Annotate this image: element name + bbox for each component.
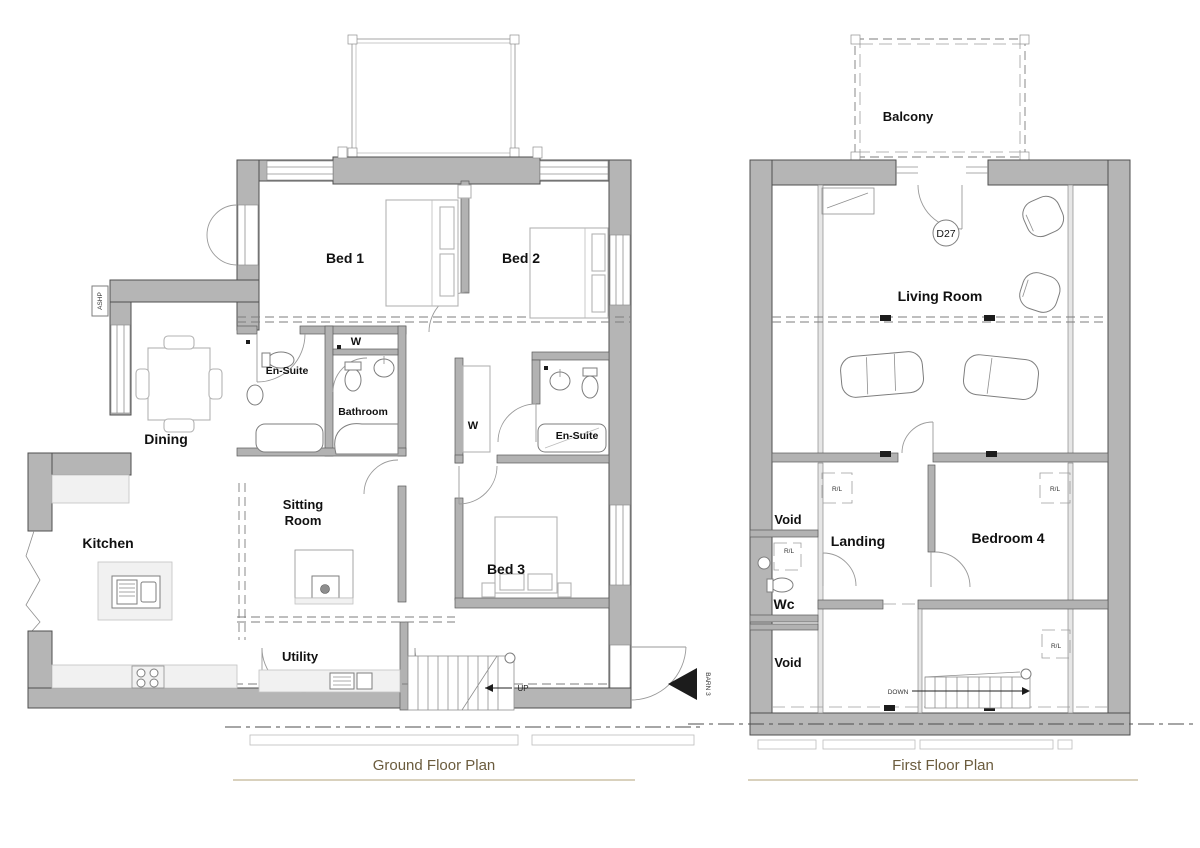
ground-floor-plan: ASHP: [26, 35, 711, 745]
room-label-void2: Void: [774, 655, 801, 670]
room-label-sitting-1: Sitting: [283, 497, 323, 512]
room-label-bed1: Bed 1: [326, 250, 364, 266]
rooflight-label-landing: R/L: [832, 486, 843, 493]
up-label: UP: [517, 684, 528, 693]
rooflight-label-wc: R/L: [784, 548, 795, 555]
first-floor-title: First Floor Plan: [748, 757, 1138, 781]
room-label-bed3: Bed 3: [487, 561, 525, 577]
ff-interior-walls: [750, 422, 1108, 713]
floorplan-drawing: ASHP: [0, 0, 1200, 848]
room-label-dining: Dining: [144, 431, 188, 447]
door-tag-d27: D27: [936, 228, 955, 240]
ff-room-labels: Living Room Void Landing Bedroom 4 Wc Vo…: [774, 288, 1045, 670]
room-label-utility: Utility: [282, 649, 319, 664]
gf-stairs: UP: [408, 653, 529, 710]
rooflight-label-bedroom4: R/L: [1050, 486, 1061, 493]
room-label-wardrobe2: W: [468, 420, 479, 432]
terrace-outline: [348, 35, 519, 157]
ground-floor-title: Ground Floor Plan: [233, 757, 635, 781]
room-label-bathroom: Bathroom: [338, 406, 388, 418]
room-label-wardrobe1: W: [351, 336, 362, 348]
room-label-void1: Void: [774, 512, 801, 527]
ashp-label: ASHP: [97, 292, 104, 310]
room-label-balcony: Balcony: [883, 109, 934, 124]
balcony-outline: Balcony: [851, 35, 1029, 161]
room-label-bedroom4: Bedroom 4: [971, 530, 1044, 546]
down-label: DOWN: [888, 689, 909, 696]
floorplan-sheet: ASHP: [0, 0, 1200, 848]
barn3-label: BARN 3: [704, 672, 711, 696]
ff-stairs: DOWN: [888, 669, 1031, 708]
room-label-landing: Landing: [831, 533, 885, 549]
room-label-kitchen: Kitchen: [82, 535, 133, 551]
room-label-bed2: Bed 2: [502, 250, 540, 266]
rooflight-label-stair: R/L: [1051, 643, 1062, 650]
room-label-sitting-2: Room: [285, 513, 322, 528]
barn3-marker: BARN 3: [668, 668, 711, 700]
ff-knee-walls: [818, 185, 1073, 713]
room-label-wc: Wc: [774, 596, 795, 612]
room-label-ensuite1: En-Suite: [266, 365, 309, 377]
room-label-ensuite2: En-Suite: [556, 430, 599, 442]
first-floor-plan: Balcony: [688, 35, 1196, 749]
room-label-living-room: Living Room: [898, 288, 983, 304]
